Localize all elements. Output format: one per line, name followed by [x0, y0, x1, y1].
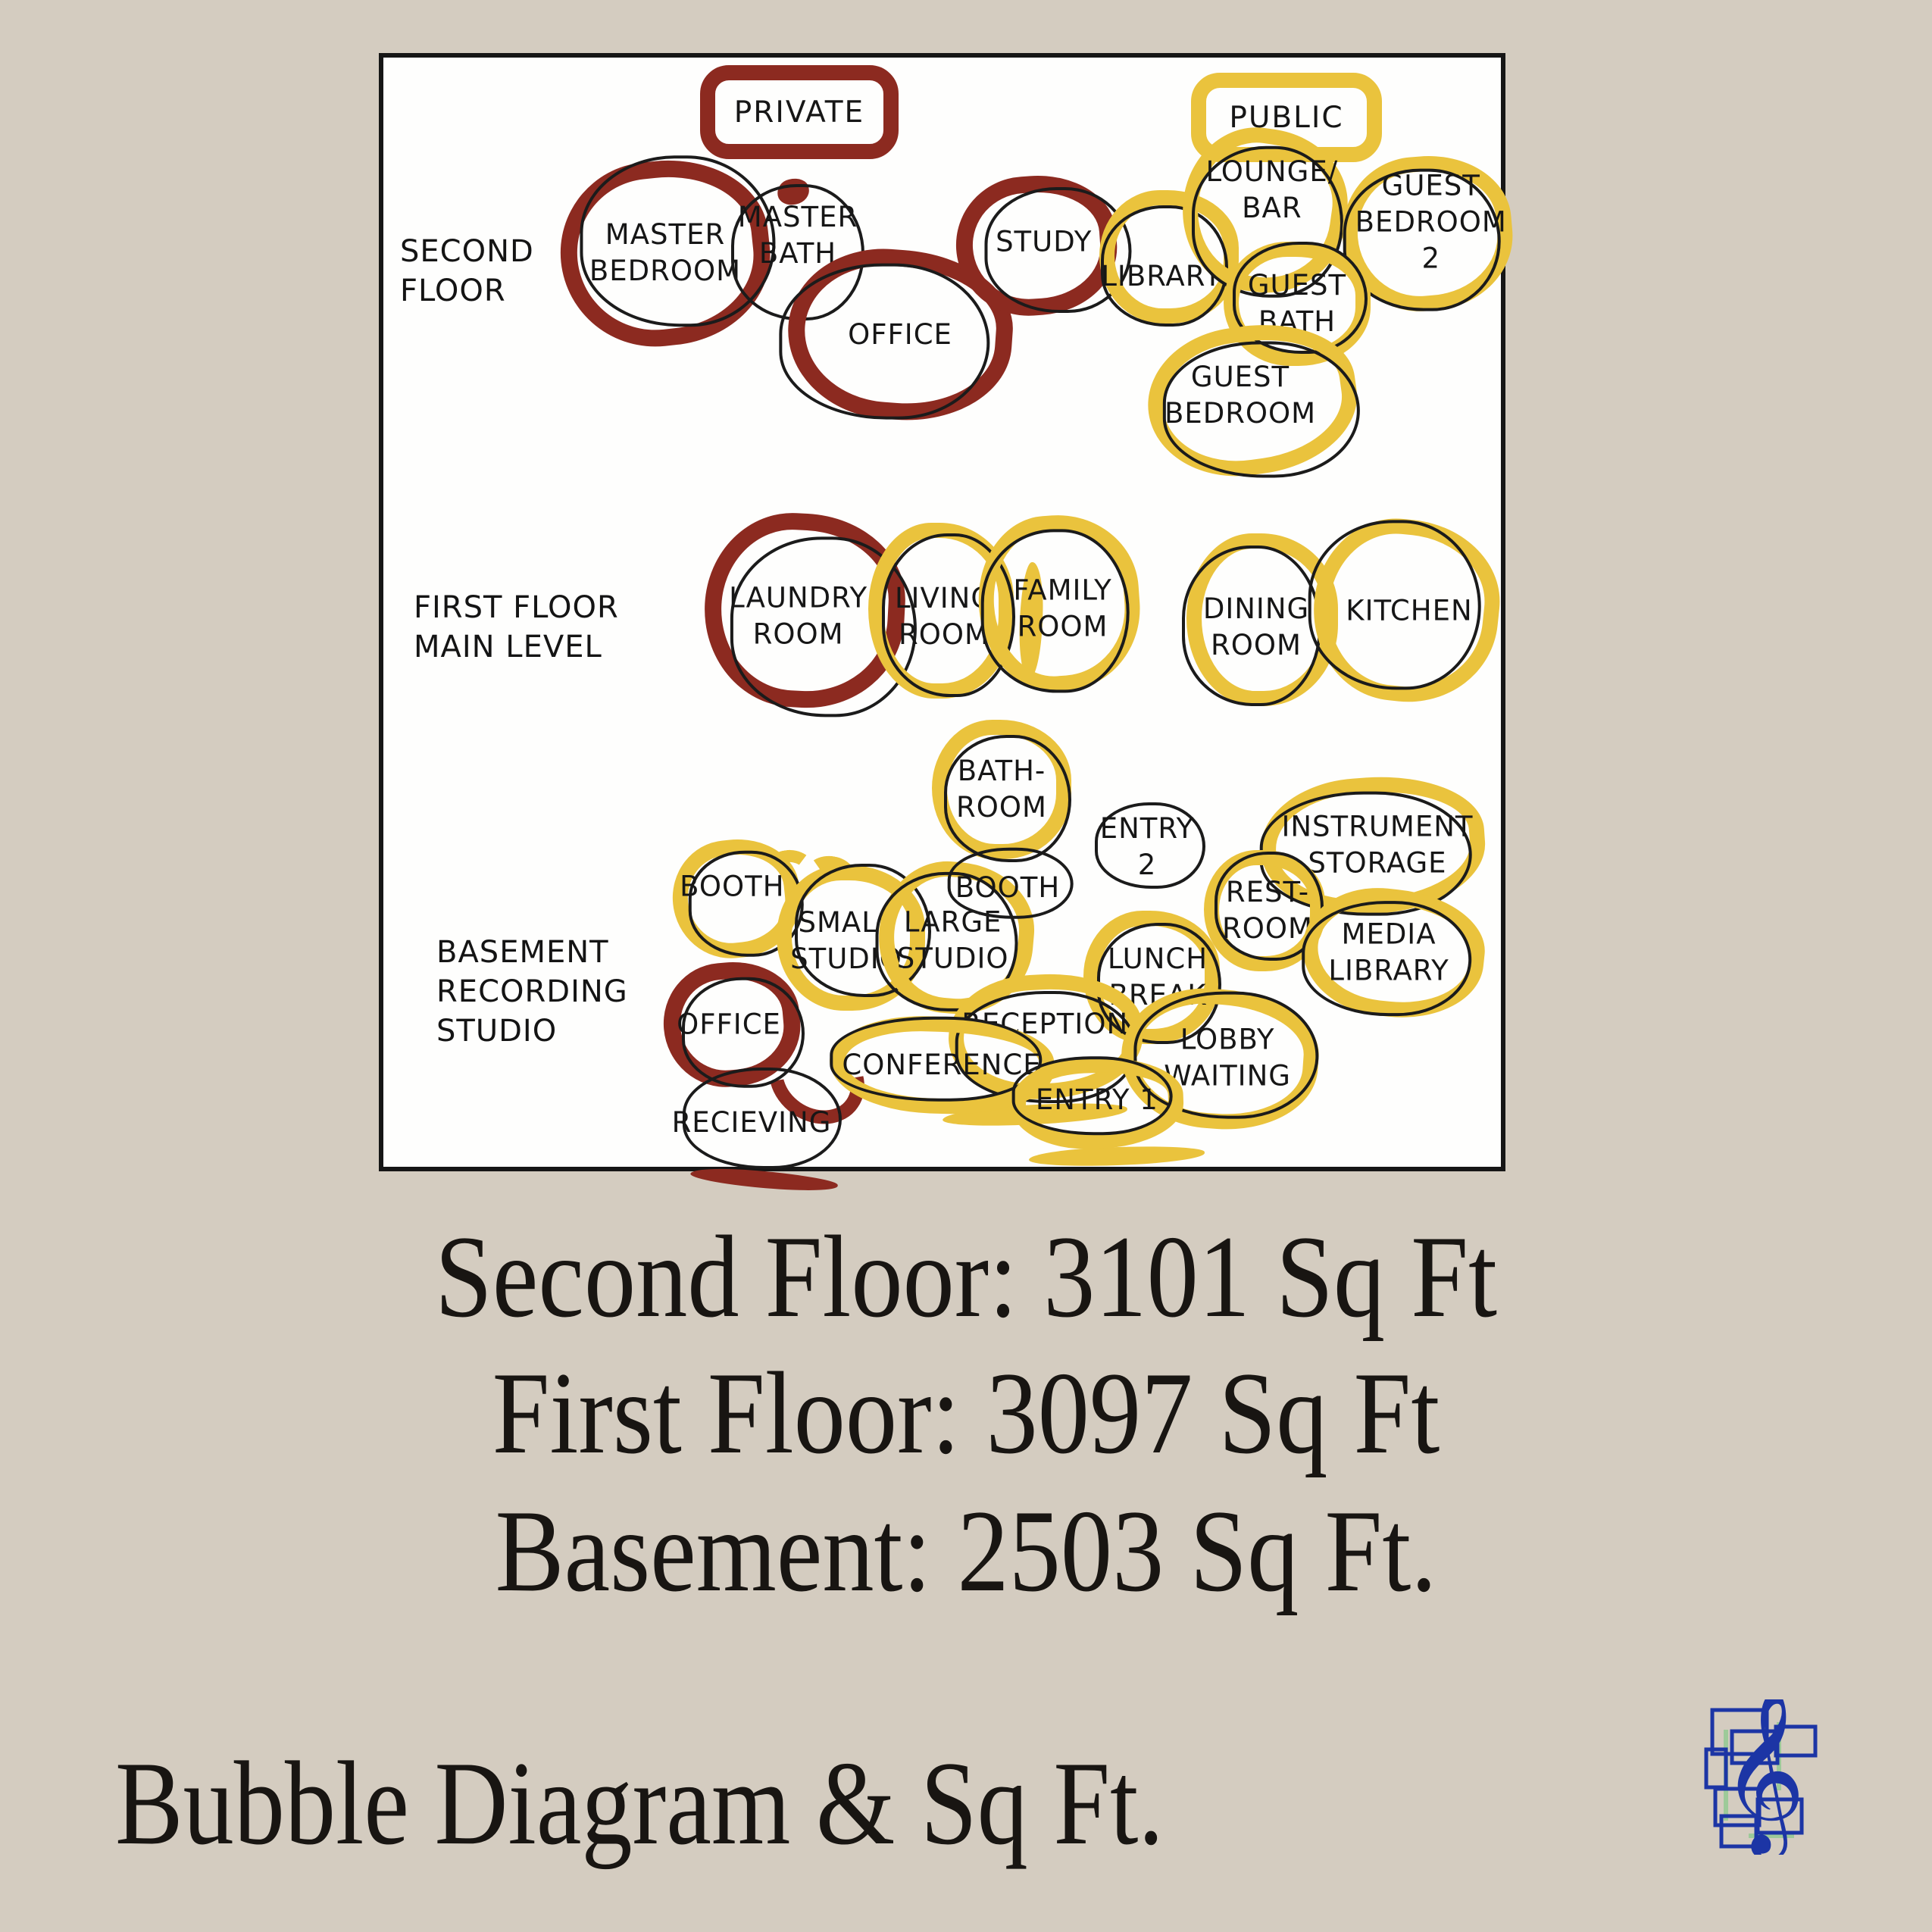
bubble-office-2f-label: OFFICE [759, 317, 1041, 353]
bubble-bathroom-1f: BATH-ROOM [932, 720, 1071, 859]
second-floor-label: SECONDFLOOR [400, 232, 534, 311]
bubble-media-library-label: MEDIALIBRARY [1268, 916, 1510, 989]
bubble-recieving-label: RECIEVING [635, 1105, 868, 1141]
second-floor-sqft-text: Second Floor: 3101 Sq Ft [216, 1212, 1716, 1345]
page-title: Bubble Diagram & Sq Ft. [115, 1740, 1164, 1868]
private-zone: PRIVATE [700, 65, 899, 159]
bubble-family-room-label: FAMILYROOM [952, 573, 1174, 646]
private-zone-label: PRIVATE [734, 95, 864, 130]
treble-clef-floorplan-icon: 𝄞 [1703, 1699, 1823, 1855]
bubble-recieving: RECIEVING [671, 1070, 841, 1182]
basement-label: BASEMENTRECORDINGSTUDIO [436, 933, 628, 1051]
bubble-kitchen-label: KITCHEN [1286, 592, 1532, 629]
first-floor-label: FIRST FLOORMAIN LEVEL [414, 588, 619, 667]
bubble-kitchen: KITCHEN [1305, 511, 1508, 711]
music-studio-logo: 𝄞 [1703, 1699, 1823, 1855]
bubble-entry-1-label: ENTRY 1 [980, 1082, 1214, 1118]
bubble-diagram-panel: SECONDFLOORFIRST FLOORMAIN LEVELBASEMENT… [379, 53, 1505, 1171]
bubble-entry-2-label: ENTRY2 [1055, 811, 1240, 883]
entry1-underline [1029, 1144, 1205, 1168]
bubble-family-room: FAMILYROOM [973, 510, 1146, 696]
bubble-office-basement-label: OFFICE [632, 1006, 826, 1043]
treble-clef-glyph: 𝄞 [1721, 1699, 1805, 1855]
bubble-guest-bedroom-label: GUESTBEDROOM [1105, 359, 1375, 432]
first-floor-sqft-text: First Floor: 3097 Sq Ft [216, 1349, 1716, 1481]
basement-sqft-text: Basement: 2503 Sq Ft. [216, 1487, 1716, 1619]
